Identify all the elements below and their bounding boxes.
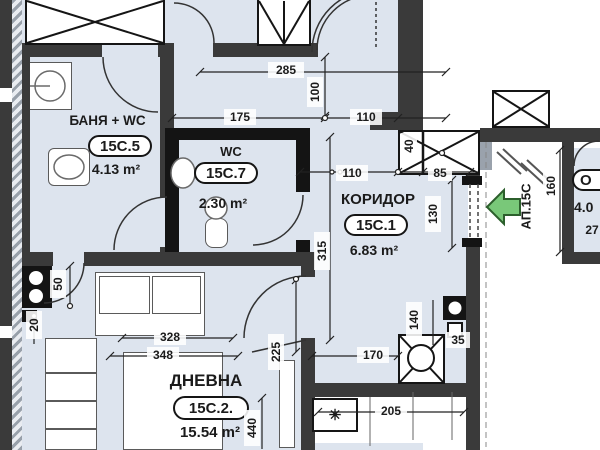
room-area-corridor: 6.83 m² (334, 242, 414, 258)
dim-160: 160 (543, 168, 559, 204)
wall-bath-left (22, 43, 30, 263)
room-code-corridor: 15С.1 (344, 214, 408, 236)
wall-insulation-strip (12, 0, 22, 450)
dim-285: 285 (268, 62, 304, 78)
floor-plan: О (0, 0, 600, 450)
dim-225: 225 (268, 334, 284, 370)
room-area-living: 15.54 m² (165, 424, 255, 441)
wardrobe-shelf (46, 400, 96, 402)
room-code-wc: 15С.7 (194, 162, 258, 184)
dim-85: 85 (428, 165, 452, 181)
wall-neighbor-horizontal (562, 252, 600, 264)
room-area-wc: 2.30 m² (183, 195, 263, 211)
dim-348: 348 (147, 347, 179, 363)
dim-170: 170 (357, 347, 389, 363)
wall-balcony (301, 383, 480, 397)
kitchen-sink-unit (443, 296, 468, 320)
wall-neighbor-vertical (562, 142, 574, 254)
entry-door-post (462, 176, 482, 185)
wall-left-edge (0, 0, 12, 450)
wardrobe-shelf (46, 372, 96, 374)
wall-bath-bottom-b (84, 252, 162, 266)
wall-wc-right-top (296, 128, 310, 192)
dim-20: 20 (26, 311, 42, 339)
kitchen-vent-shaft (398, 334, 445, 384)
balcony-door-leaf (279, 360, 295, 448)
wall-main-vertical (398, 0, 423, 130)
wall-wc-left (165, 128, 179, 252)
dim-315: 315 (314, 232, 330, 270)
wall-living-right-top (301, 266, 315, 277)
sofa-cushion-left (99, 276, 150, 314)
dim-205: 205 (375, 403, 407, 419)
dim-328: 328 (154, 329, 186, 345)
room-area-bathroom: 4.13 m² (76, 161, 156, 177)
room-name-wc: WC (216, 144, 246, 159)
balcony-frame-lines (370, 392, 452, 446)
dim-110-mid: 110 (336, 165, 368, 181)
entry-door-dashes (470, 184, 478, 238)
wall-living-top (160, 252, 315, 266)
wall-gap (0, 88, 12, 102)
dim-50: 50 (50, 270, 66, 298)
dim-100: 100 (307, 77, 323, 107)
dim-40: 40 (401, 133, 417, 159)
neighbor-area-partial: 4.0 (574, 199, 600, 215)
neighbor-room-code-partial: О (572, 169, 600, 191)
dim-130: 130 (425, 196, 441, 232)
dim-175: 175 (224, 109, 256, 125)
wall-wc-right-stub (296, 240, 310, 252)
wall-wc-top (165, 128, 310, 140)
dim-440: 440 (244, 410, 260, 446)
floor-terrace-sliver (310, 443, 423, 450)
wardrobe-shelf (46, 428, 96, 430)
room-code-bathroom: 15С.5 (88, 135, 152, 157)
elevator-shaft-box (25, 0, 165, 45)
wall-right-top (480, 128, 600, 142)
sofa-cushion-right (152, 276, 201, 314)
entry-door-post (462, 238, 482, 247)
stove-unit (22, 266, 52, 308)
room-name-corridor: КОРИДОР (330, 191, 426, 208)
radiator-symbol: ✳ (312, 398, 358, 432)
toilet-bowl (205, 218, 228, 248)
right-shaft-box (492, 90, 550, 128)
wardrobe (45, 338, 97, 450)
wall-gap (0, 326, 12, 338)
room-name-bathroom: БАНЯ + WC (55, 113, 160, 128)
apartment-entrance-label: АП.15С (519, 172, 536, 242)
room-code-living: 15С.2. (173, 396, 249, 420)
dim-140: 140 (406, 302, 422, 338)
dim-35: 35 (446, 332, 470, 348)
neighbor-dim-partial: 27 (580, 222, 600, 238)
wall-bath-bottom-a (22, 252, 53, 266)
wall-top-a (22, 43, 102, 57)
structural-column-box (257, 0, 311, 46)
dim-110-top: 110 (350, 109, 382, 125)
shower-tray (28, 62, 72, 110)
entrance-arrow (487, 190, 520, 224)
room-name-living: ДНЕВНА (158, 371, 254, 391)
